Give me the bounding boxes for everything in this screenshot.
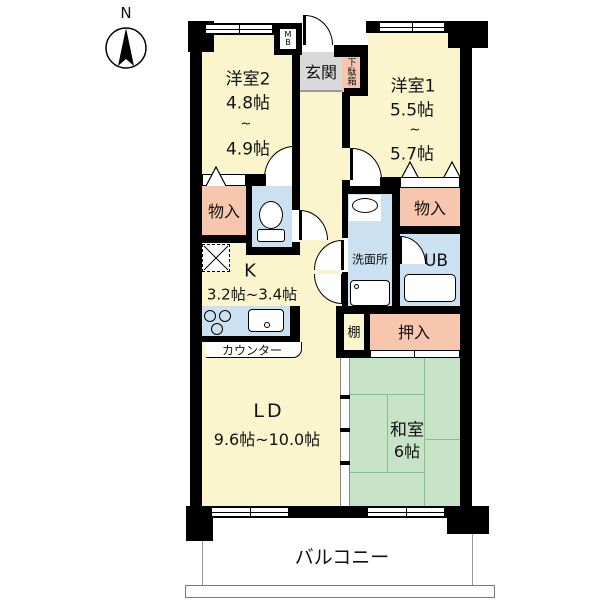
room-label-washroom: 洗面所: [352, 251, 388, 268]
room-size-japanese-room: 6帖: [394, 438, 420, 462]
room-label-western-room-2: 洋室2: [226, 65, 271, 90]
room-label-kitchen: K: [244, 261, 256, 282]
room-size-tilde: ~: [410, 123, 421, 138]
counter-label: カウンター: [222, 342, 282, 359]
balcony-label: バルコニー: [295, 543, 390, 570]
room-size-tilde: ~: [241, 117, 252, 132]
room-size-western-room-2-max: 4.9帖: [226, 135, 270, 160]
room-label-unit-bath: UB: [424, 251, 448, 271]
room-label-shelf: 棚: [347, 322, 360, 341]
room-size-living-dining: 9.6帖~10.0帖: [214, 426, 320, 450]
room-label-closet: 押入: [398, 319, 430, 343]
room-label-shoe-cabinet: 下駄箱: [345, 58, 358, 87]
room-label-entrance: 玄関: [305, 59, 337, 83]
compass-north-label: N: [120, 4, 131, 22]
room-label-storage-left: 物入: [208, 198, 240, 222]
room-label-western-room-1: 洋室1: [391, 72, 436, 97]
room-label-japanese-room: 和室: [390, 416, 424, 441]
plan-detail-icons: [0, 0, 600, 600]
folding-door-icon: [206, 167, 226, 186]
room-size-western-room-1-min: 5.5帖: [390, 96, 434, 121]
floor-plan: N: [0, 0, 600, 600]
room-size-western-room-2-min: 4.8帖: [226, 89, 270, 114]
room-label-storage-right: 物入: [414, 195, 446, 219]
room-size-kitchen: 3.2帖~3.4帖: [207, 284, 297, 305]
room-label-living-dining: LD: [253, 400, 284, 422]
folding-door-icon: [444, 162, 460, 177]
room-size-western-room-1-max: 5.7帖: [390, 140, 434, 165]
